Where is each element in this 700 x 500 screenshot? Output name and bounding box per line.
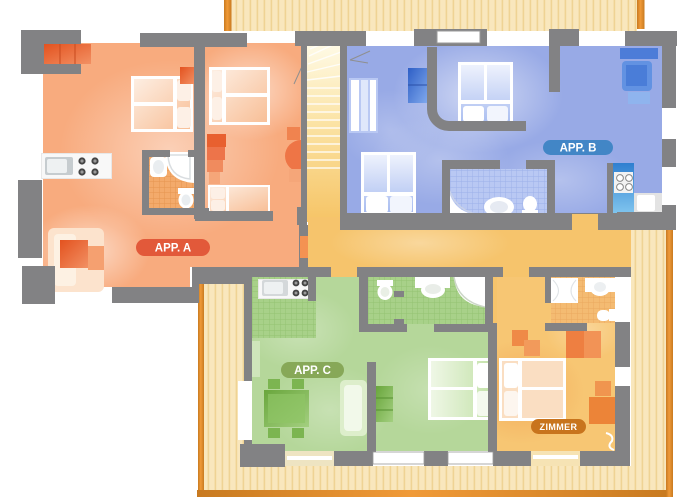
svg-text:APP. C: APP. C: [294, 365, 331, 377]
svg-text:APP. A: APP. A: [155, 243, 191, 255]
svg-text:APP. B: APP. B: [560, 143, 597, 155]
svg-text:ZIMMER: ZIMMER: [540, 422, 578, 432]
